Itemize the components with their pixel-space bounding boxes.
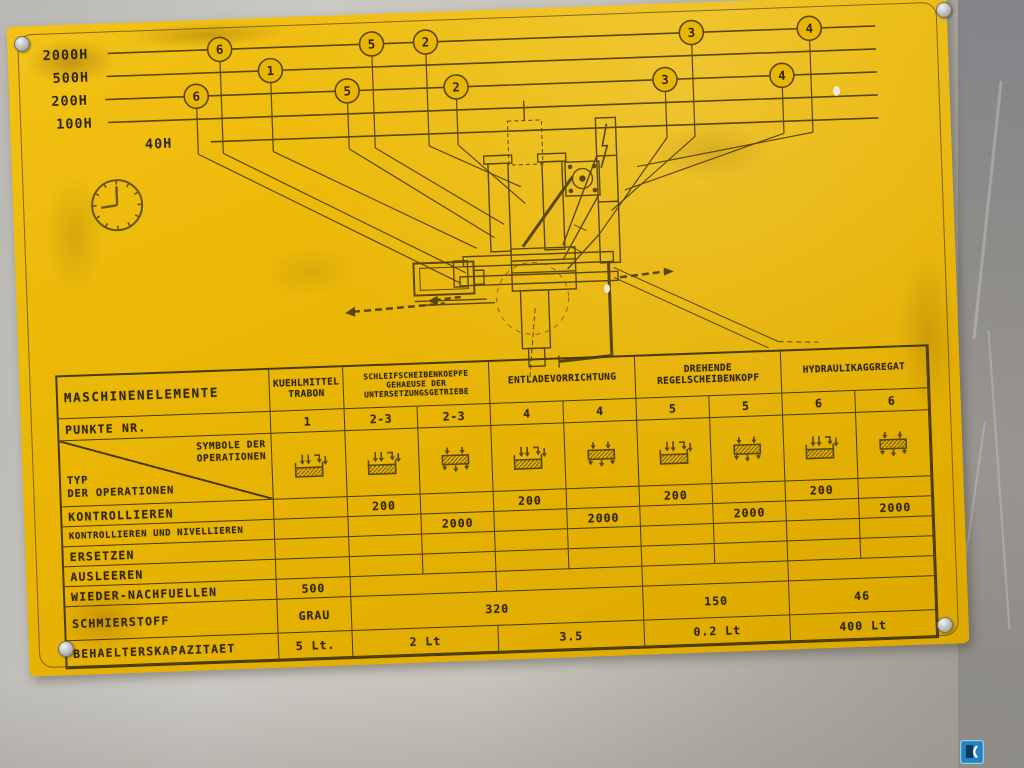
tank-fill-icon	[799, 431, 842, 462]
tank-drain-icon	[726, 434, 769, 465]
concrete-wall-right	[958, 0, 1024, 768]
punkte-number: 6	[855, 388, 929, 413]
tank-drain-icon	[434, 444, 477, 475]
interval-label-2000H: 2000H	[42, 47, 88, 65]
clock-tick	[96, 216, 100, 218]
tank-fill-icon	[507, 441, 550, 472]
point-number: 6	[192, 89, 200, 104]
symbol-cell	[710, 415, 785, 484]
symbol-cell	[783, 413, 858, 482]
value-cell: 46	[789, 576, 936, 615]
lead-line	[198, 145, 460, 292]
typ-label-line: DER OPERATIONEN	[67, 485, 174, 502]
value-cell	[642, 544, 716, 567]
point-number: 4	[805, 21, 813, 36]
value-cell: 200	[785, 479, 859, 502]
symbole-label-line: OPERATIONEN	[197, 451, 267, 465]
drop-line	[425, 42, 429, 146]
screw-bottom-right	[937, 617, 953, 633]
value-cell: 2000	[713, 501, 787, 524]
value-cell: 5 Lt.	[279, 631, 354, 660]
value-cell	[275, 537, 350, 560]
symbol-cell	[564, 421, 639, 490]
value-cell: 200	[640, 484, 714, 507]
typ-der-operationen-label: TYPDER OPERATIONEN	[67, 471, 175, 502]
clock-icon	[91, 179, 143, 231]
punkte-number: 6	[782, 391, 856, 416]
value-cell: 2000	[421, 512, 495, 535]
lead-line	[636, 132, 814, 166]
tank-fill-icon	[288, 449, 331, 480]
value-cell	[348, 514, 422, 537]
clock-tick	[104, 184, 106, 188]
point-number: 2	[421, 34, 429, 49]
symbole-typ-cell: SYMBOLE DEROPERATIONENTYPDER OPERATIONEN	[60, 434, 274, 508]
paint-speck	[604, 284, 610, 293]
value-cell	[567, 487, 641, 510]
point-number: 4	[778, 68, 786, 83]
clock-tick	[135, 215, 139, 217]
value-cell	[421, 492, 495, 515]
value-cell	[274, 517, 349, 540]
clock-tick	[128, 222, 130, 226]
punkte-number: 4	[563, 399, 637, 424]
value-cell	[569, 547, 643, 570]
value-cell	[568, 527, 642, 550]
lead-line	[223, 145, 465, 281]
drop-line	[691, 33, 695, 137]
value-cell	[714, 521, 788, 544]
value-cell	[423, 552, 497, 575]
symbole-der-operationen-label: SYMBOLE DEROPERATIONEN	[196, 439, 266, 465]
lead-line	[596, 137, 670, 233]
symbol-cell	[345, 429, 420, 498]
drop-line	[220, 49, 224, 153]
tank-fill-icon	[653, 436, 696, 467]
symbol-cell	[491, 423, 566, 492]
value-cell	[641, 524, 715, 547]
value-cell: 0.2 Lt	[644, 615, 791, 646]
tank-fill-icon	[361, 447, 404, 478]
clock-tick	[134, 192, 138, 194]
lead-line	[623, 133, 786, 190]
group-header-3: DREHENDEREGELSCHEIBENKOPF	[635, 352, 782, 399]
value-cell	[715, 541, 789, 564]
value-cell	[788, 539, 862, 562]
value-cell	[494, 509, 568, 532]
value-cell	[860, 516, 934, 539]
drop-line	[809, 28, 813, 132]
value-cell: 2000	[567, 507, 641, 530]
punkte-number: 4	[490, 401, 564, 426]
group-header-0: KUEHLMITTELTRABON	[269, 367, 344, 412]
value-cell: 200	[494, 489, 568, 512]
punkte-number: 2-3	[345, 407, 419, 432]
value-cell: 2000	[859, 496, 933, 519]
watermark-logo	[960, 740, 984, 764]
group-header-4: HYDRAULIKAGGREGAT	[781, 346, 928, 393]
value-cell	[495, 529, 569, 552]
value-cell	[861, 536, 935, 559]
clock-tick	[95, 193, 99, 195]
symbol-cell	[856, 410, 931, 479]
value-cell: 3.5	[498, 621, 645, 652]
interval-label-200H: 200H	[51, 93, 88, 110]
group-header-line: ENTLADEVORRICHTUNG	[508, 372, 617, 387]
group-header-2: ENTLADEVORRICHTUNG	[489, 357, 636, 404]
maintenance-plate: 2000H500H200H100H40H65234165234	[7, 0, 970, 677]
clock-tick	[105, 223, 107, 227]
interval-label-100H: 100H	[56, 116, 93, 133]
value-cell	[858, 476, 932, 499]
value-cell	[274, 497, 349, 520]
lead-line	[458, 143, 525, 206]
value-cell	[787, 519, 861, 542]
symbol-cell	[418, 426, 493, 495]
lead-line	[429, 143, 521, 190]
tank-drain-icon	[872, 428, 915, 459]
group-header-line: HYDRAULIKAGGREGAT	[803, 362, 906, 377]
photo-of-maintenance-plate: 2000H500H200H100H40H65234165234	[0, 0, 1024, 768]
symbol-cell	[271, 431, 347, 500]
tank-drain-icon	[580, 439, 623, 470]
maintenance-table: MASCHINENELEMENTEKUEHLMITTELTRABONSCHLEI…	[55, 344, 939, 669]
interval-line-100H	[108, 95, 878, 123]
punkte-number: 5	[636, 396, 710, 421]
paint-speck	[833, 86, 840, 96]
point-number: 2	[452, 79, 460, 94]
point-number: 5	[367, 36, 375, 51]
interval-line-40H	[211, 118, 879, 142]
value-cell: 2 Lt	[353, 626, 500, 657]
concrete-wall-bottom	[0, 680, 1024, 768]
point-number: 3	[687, 25, 695, 40]
point-number: 5	[343, 83, 351, 98]
value-cell: 500	[277, 577, 352, 600]
group-header-line: REGELSCHEIBENKOPF	[657, 373, 760, 388]
punkte-number: 5	[709, 394, 783, 419]
punkte-number: 2-3	[418, 404, 492, 429]
value-cell	[496, 549, 570, 572]
lead-line	[349, 144, 494, 243]
value-cell	[276, 557, 351, 580]
value-cell: 400 Lt	[790, 610, 937, 641]
value-cell	[640, 504, 714, 527]
lead-line	[609, 136, 697, 210]
interval-label-40H: 40H	[145, 136, 173, 153]
point-number: 1	[266, 63, 274, 78]
interval-lines-group: 2000H500H200H100H40H65234165234	[42, 14, 884, 298]
value-cell: 150	[643, 581, 790, 620]
screw-bottom-left	[58, 641, 74, 657]
interval-label-500H: 500H	[52, 70, 89, 87]
group-header-1: SCHLEIFSCHEIBENKOEPFEGEHAEUSE DERUNTERSE…	[343, 362, 490, 409]
drop-line	[372, 44, 376, 148]
clock-tick	[127, 183, 129, 187]
lead-line	[273, 144, 477, 255]
value-cell	[349, 534, 423, 557]
value-cell: 200	[348, 495, 422, 518]
value-cell	[422, 532, 496, 555]
screw-top-right	[936, 2, 952, 18]
punkte-number: 1	[271, 409, 346, 434]
point-number: 6	[216, 42, 224, 57]
symbol-cell	[637, 418, 712, 487]
value-cell	[786, 499, 860, 522]
group-header-line: UNTERSETZUNGSGETRIEBE	[364, 388, 469, 401]
value-cell	[350, 554, 424, 577]
point-number: 3	[661, 72, 669, 87]
value-cell: GRAU	[277, 597, 352, 634]
screw-top-left	[14, 36, 30, 52]
group-header-line: TRABON	[288, 388, 324, 400]
value-cell	[712, 481, 786, 504]
